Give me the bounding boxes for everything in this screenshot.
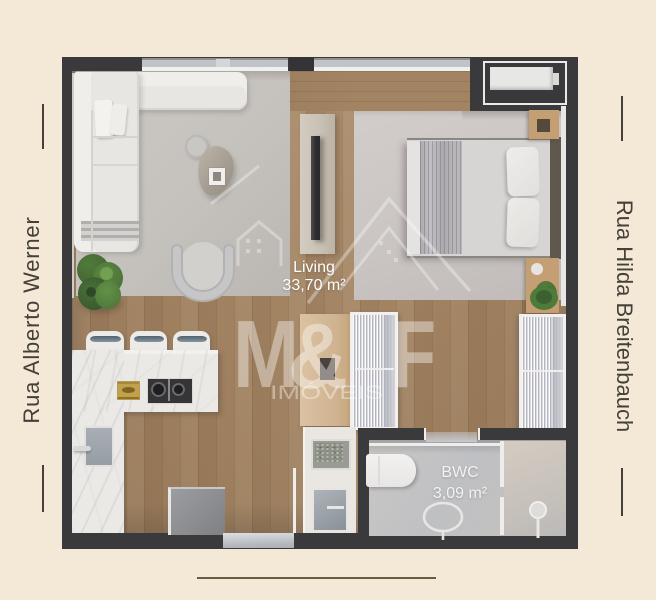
svg-text:IMÓVEIS: IMÓVEIS <box>270 382 383 404</box>
svg-text:F: F <box>392 301 436 408</box>
